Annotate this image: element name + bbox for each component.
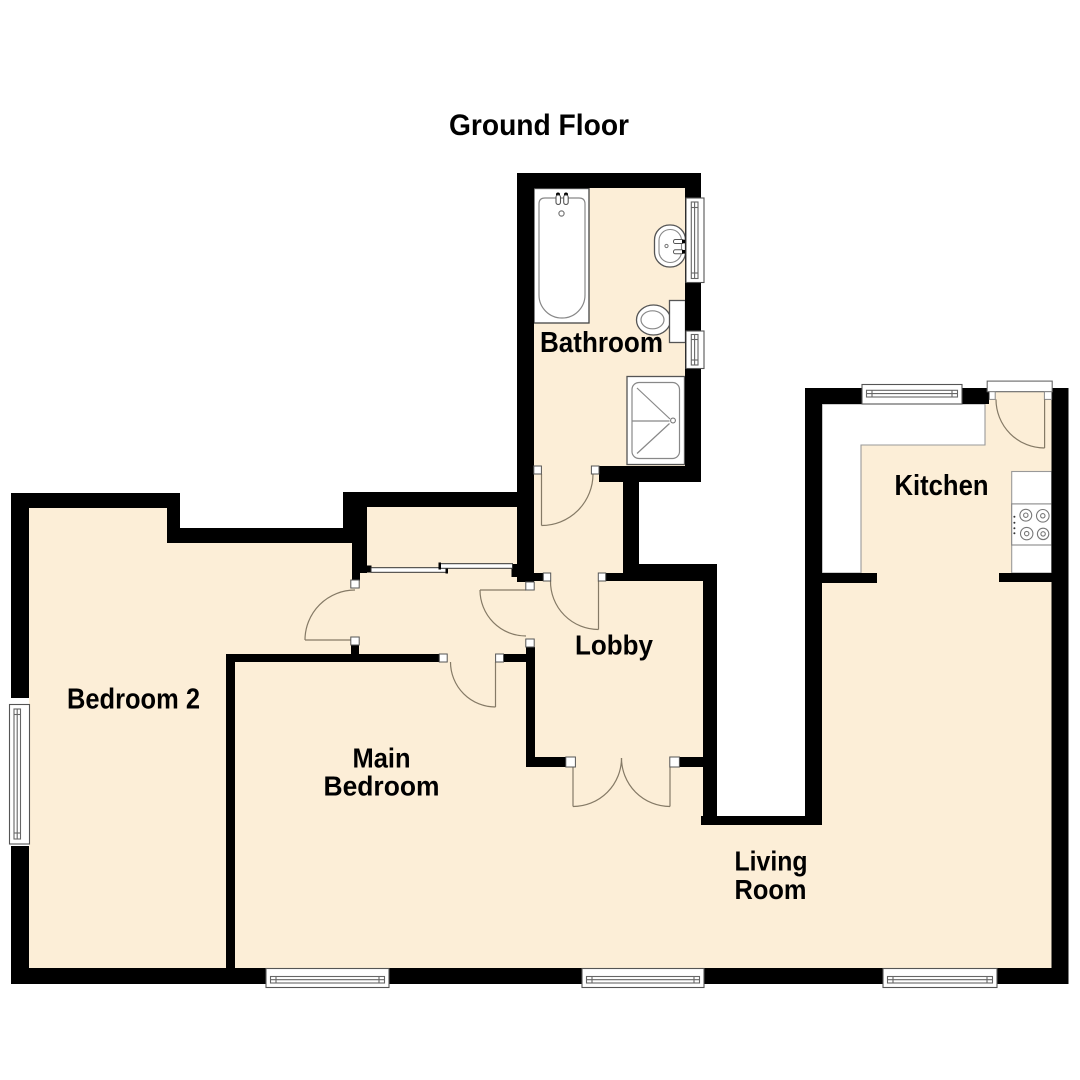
- svg-text:Bedroom 2: Bedroom 2: [67, 684, 200, 716]
- svg-text:Main: Main: [353, 743, 411, 774]
- svg-text:Room: Room: [735, 874, 807, 905]
- svg-text:Kitchen: Kitchen: [895, 470, 989, 502]
- svg-text:Lobby: Lobby: [575, 630, 653, 661]
- svg-text:Bedroom: Bedroom: [324, 771, 440, 802]
- svg-text:Ground Floor: Ground Floor: [449, 109, 629, 142]
- svg-text:Bathroom: Bathroom: [540, 327, 663, 359]
- svg-text:Living: Living: [735, 846, 808, 877]
